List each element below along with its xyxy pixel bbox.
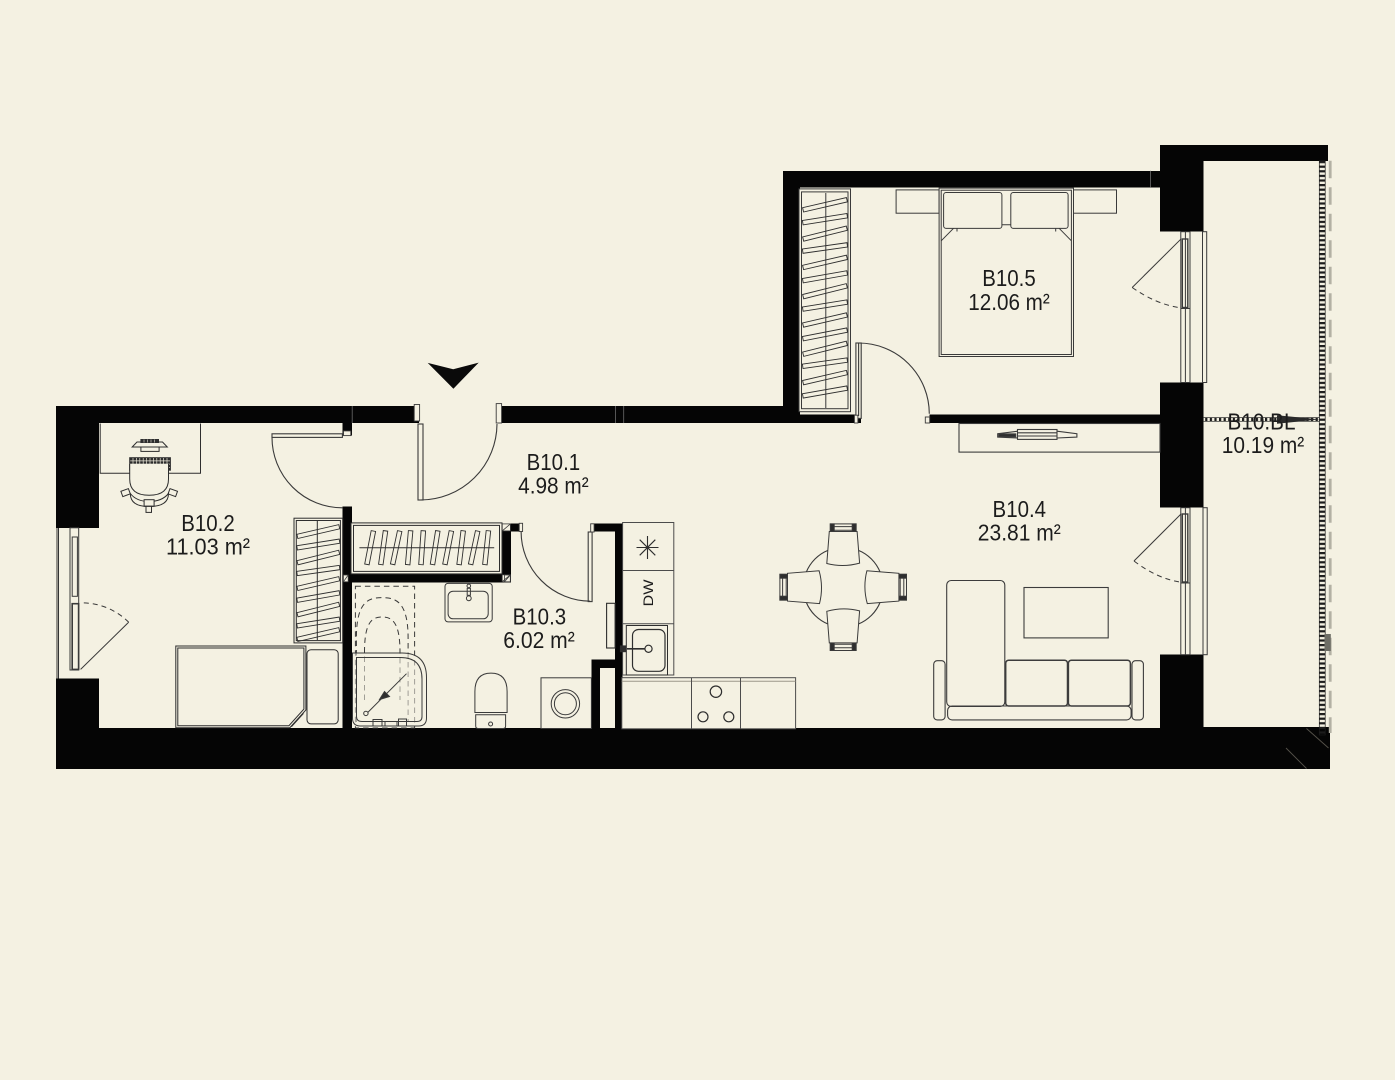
svg-text:11.03 m²: 11.03 m² <box>166 534 250 560</box>
svg-text:B10.3: B10.3 <box>513 603 567 629</box>
svg-text:DW: DW <box>640 579 656 607</box>
svg-text:B10.BL: B10.BL <box>1228 409 1296 435</box>
svg-text:4.98 m²: 4.98 m² <box>518 473 589 499</box>
svg-text:12.06 m²: 12.06 m² <box>968 289 1050 315</box>
svg-text:6.02 m²: 6.02 m² <box>503 627 575 653</box>
svg-text:B10.1: B10.1 <box>527 449 581 475</box>
svg-text:10.19 m²: 10.19 m² <box>1222 432 1305 458</box>
svg-text:B10.2: B10.2 <box>181 510 235 536</box>
svg-text:B10.4: B10.4 <box>993 496 1047 522</box>
svg-text:B10.5: B10.5 <box>982 265 1036 291</box>
svg-text:23.81 m²: 23.81 m² <box>978 520 1061 546</box>
